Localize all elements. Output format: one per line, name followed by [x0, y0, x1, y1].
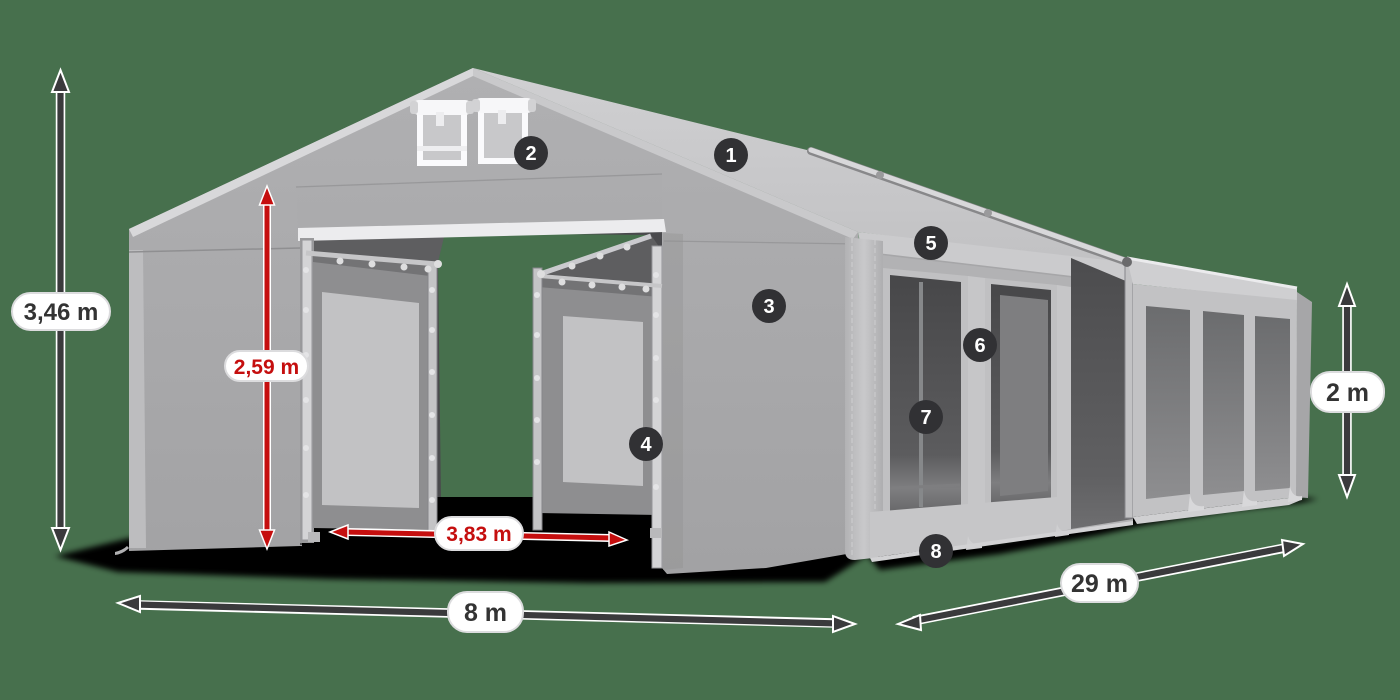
svg-text:6: 6	[974, 335, 985, 357]
svg-text:3: 3	[763, 296, 774, 318]
svg-text:3,83 m: 3,83 m	[446, 523, 511, 546]
svg-text:8: 8	[930, 541, 941, 563]
svg-text:2: 2	[525, 143, 536, 165]
svg-text:1: 1	[725, 145, 736, 167]
svg-text:2 m: 2 m	[1326, 379, 1369, 407]
svg-text:29 m: 29 m	[1071, 570, 1128, 598]
svg-text:7: 7	[920, 407, 931, 429]
svg-text:4: 4	[640, 434, 652, 456]
svg-text:8 m: 8 m	[464, 599, 507, 627]
svg-text:2,59 m: 2,59 m	[234, 356, 299, 379]
svg-text:5: 5	[925, 233, 936, 255]
svg-text:3,46 m: 3,46 m	[24, 299, 99, 326]
